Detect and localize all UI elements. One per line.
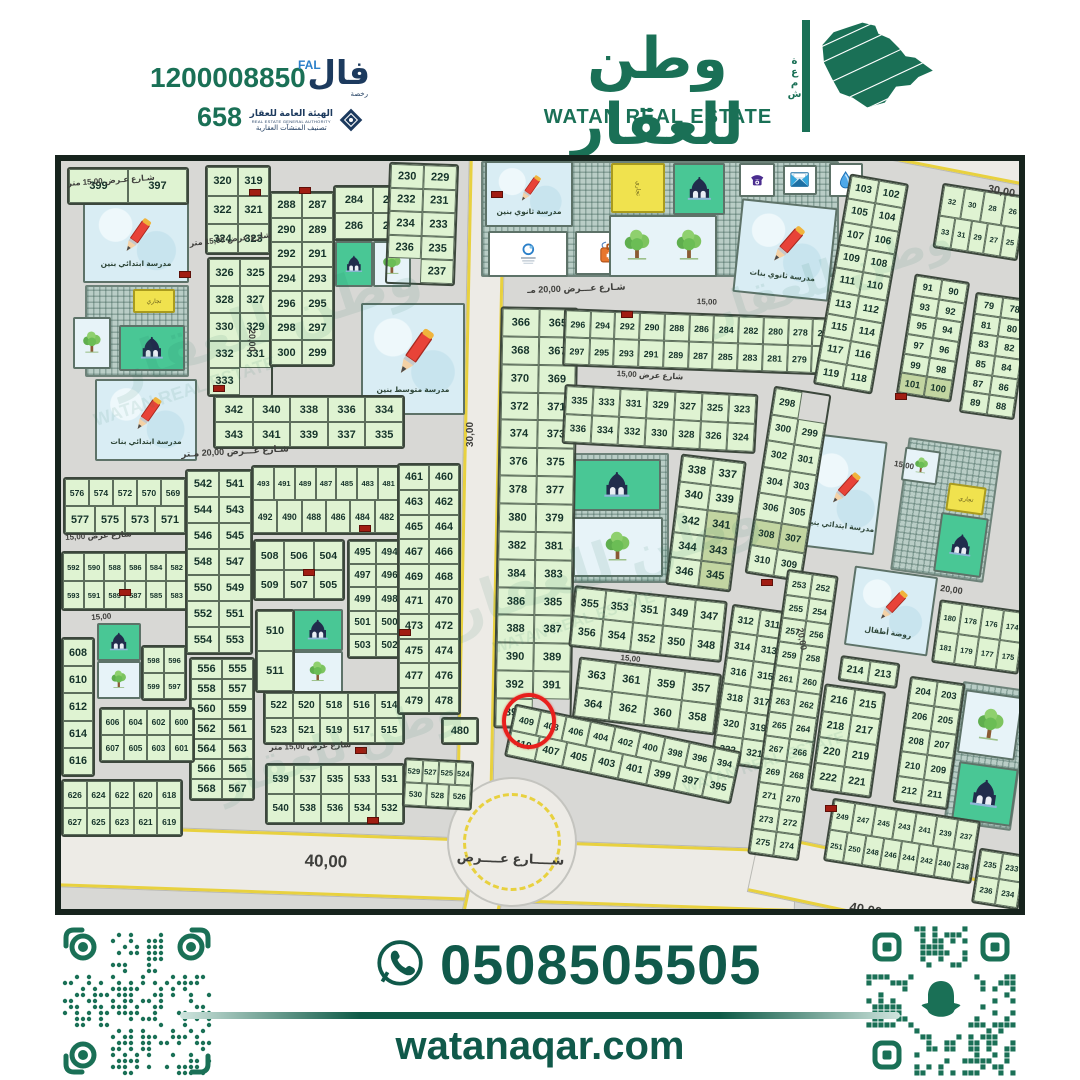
authority-name-ar: الهيئة العامة للعقار (250, 108, 333, 119)
plot-296: 296 (565, 310, 591, 338)
plot-273: 273 (753, 805, 780, 832)
plot-467: 467 (399, 539, 429, 564)
plot-328: 328 (209, 286, 240, 313)
plot-325: 325 (240, 259, 271, 286)
plot-328: 328 (672, 420, 701, 449)
plot-335: 335 (365, 422, 403, 447)
plot-558: 558 (191, 679, 222, 699)
plot-206: 206 (905, 703, 934, 731)
plot-604: 604 (124, 709, 147, 735)
plot-569: 569 (161, 479, 185, 506)
plot-empty (387, 258, 421, 283)
plot-284: 284 (335, 187, 373, 213)
plot-335: 335 (565, 386, 594, 415)
plot-220: 220 (816, 737, 848, 767)
plot-330: 330 (209, 313, 240, 340)
snapchat-qr-code[interactable] (866, 926, 1016, 1076)
plot-211: 211 (920, 780, 949, 808)
plot-586: 586 (125, 553, 146, 581)
plot-515: 515 (375, 718, 403, 743)
fal-latin: FAL (298, 58, 321, 72)
plot-503: 503 (349, 634, 376, 657)
plot-574: 574 (89, 479, 113, 506)
plot-524: 524 (454, 762, 472, 786)
plot-block-b296: 2962942922902882862842822802782762972952… (562, 308, 840, 376)
website-qr-code[interactable] (62, 926, 212, 1076)
plot-block-b556: 5565555585575605595625615645635665655685… (189, 657, 255, 801)
commercial-nw: تجاري (133, 289, 175, 313)
plot-497: 497 (349, 564, 376, 587)
plot-567: 567 (222, 779, 253, 799)
plot-560: 560 (191, 699, 222, 719)
plot-355: 355 (573, 587, 606, 619)
tree-se (957, 689, 1019, 760)
plot-block-b493: 493491489487485483481492490488486484482 (251, 465, 401, 535)
plot-321: 321 (238, 196, 269, 225)
plot-289: 289 (302, 218, 333, 243)
plot-470: 470 (429, 589, 459, 614)
plot-542: 542 (187, 471, 219, 497)
plot-559: 559 (222, 699, 253, 719)
street-label-7: شـارع عـــرض 20,00 مـ (527, 282, 626, 296)
plot-352: 352 (630, 622, 663, 654)
plot-566: 566 (191, 759, 222, 779)
sec-sign (488, 231, 568, 277)
plot-546: 546 (187, 523, 219, 549)
plot-342: 342 (215, 397, 253, 422)
plot-297: 297 (564, 337, 590, 365)
plot-221: 221 (841, 767, 873, 797)
plot-212: 212 (895, 776, 924, 804)
plot-237: 237 (954, 820, 979, 853)
plot-556: 556 (191, 659, 222, 679)
plot-block-b461: 4614604634624654644674664694684714704734… (397, 463, 461, 715)
plot-218: 218 (819, 711, 851, 741)
plot-468: 468 (429, 564, 459, 589)
mosque-c (573, 459, 661, 511)
plot-329: 329 (646, 390, 675, 419)
plot-460: 460 (429, 465, 459, 490)
street-label-16: 15,00 (620, 653, 641, 664)
plot-block-b510: 510511 (255, 609, 295, 693)
plot-block-b216: 216215218217220219222221 (810, 683, 886, 799)
plot-305: 305 (782, 497, 813, 527)
plot-310: 310 (747, 545, 778, 575)
plot-583: 583 (166, 581, 187, 609)
plot-339: 339 (290, 422, 328, 447)
plot-386: 386 (497, 587, 534, 616)
tree-nw (73, 317, 111, 369)
plot-331: 331 (619, 389, 648, 418)
plot-516: 516 (348, 693, 376, 718)
plot-618: 618 (157, 781, 181, 808)
kindergarten: روضة أطفال (844, 566, 938, 657)
plot-385: 385 (534, 588, 571, 617)
entrance-marker-14 (303, 569, 315, 576)
plot-511: 511 (257, 651, 293, 691)
mosque-ne (933, 512, 989, 578)
plot-464: 464 (429, 515, 459, 540)
plot-293: 293 (614, 339, 640, 367)
plot-533: 533 (349, 765, 376, 794)
plot-215: 215 (852, 690, 884, 720)
plot-462: 462 (429, 490, 459, 515)
plot-540: 540 (267, 794, 294, 823)
brand-divider-bar (802, 20, 810, 132)
plot-553: 553 (219, 627, 251, 653)
plot-279: 279 (787, 345, 813, 373)
plot-359: 359 (647, 667, 685, 700)
plot-543: 543 (219, 497, 251, 523)
plot-383: 383 (535, 560, 572, 589)
plot-627: 627 (63, 808, 87, 835)
plot-314: 314 (727, 632, 757, 662)
roundabout (463, 793, 561, 891)
street-label-12: 40,00 (304, 851, 347, 872)
street-label-5: 15,00 (91, 612, 112, 622)
plot-297: 297 (302, 316, 333, 341)
plot-209: 209 (924, 755, 953, 783)
plot-268: 268 (783, 762, 810, 789)
plot-356: 356 (570, 616, 603, 648)
plot-298: 298 (271, 316, 302, 341)
plot-298: 298 (772, 388, 803, 418)
plot-255: 255 (782, 594, 809, 621)
street-label-3: شـارع عـــرض 20,00 مـتر (181, 443, 289, 460)
plot-343: 343 (215, 422, 253, 447)
plot-361: 361 (612, 663, 650, 696)
plot-254: 254 (806, 598, 833, 625)
entrance-marker-4 (119, 589, 131, 596)
plot-281: 281 (762, 344, 788, 372)
plot-208: 208 (902, 727, 931, 755)
plot-596: 596 (164, 647, 185, 673)
plot-390: 390 (496, 643, 533, 672)
plot-377: 377 (536, 476, 573, 505)
mosque-top (673, 163, 725, 215)
saudi-arabia-map-logo (816, 10, 936, 128)
plot-358: 358 (678, 700, 716, 733)
plot-219: 219 (844, 741, 876, 771)
plot-283: 283 (737, 343, 763, 371)
plot-217: 217 (848, 715, 880, 745)
license-number: 658 (150, 102, 242, 133)
plot-block-b342: 342340338336334343341339337335 (213, 395, 405, 449)
mosque-tree-c (293, 609, 343, 693)
plot-286: 286 (335, 213, 373, 239)
plot-213: 213 (867, 661, 898, 687)
plot-576: 576 (65, 479, 89, 506)
plot-291: 291 (302, 242, 333, 267)
plot-374: 374 (500, 420, 537, 449)
plot-520: 520 (293, 693, 321, 718)
plot-476: 476 (429, 663, 459, 688)
brand-name-arabic: وطن للعقار (520, 26, 795, 158)
plot-307: 307 (778, 523, 809, 553)
street-label-14: 20,00 (940, 583, 964, 596)
plot-551: 551 (219, 601, 251, 627)
plot-230: 230 (390, 164, 424, 189)
plot-block-b508: 508506504509507505 (253, 539, 345, 601)
tree-c (573, 517, 663, 577)
plot-614: 614 (63, 721, 93, 748)
plot-530: 530 (404, 782, 427, 806)
plot-300: 300 (768, 414, 799, 444)
plot-545: 545 (219, 523, 251, 549)
plot-584: 584 (146, 553, 167, 581)
plot-288: 288 (664, 314, 690, 342)
footer-divider (180, 1012, 900, 1019)
entrance-marker-12 (367, 817, 379, 824)
plot-485: 485 (336, 467, 357, 500)
plot-337: 337 (711, 459, 745, 488)
website-url[interactable]: watanaqar.com (340, 1024, 740, 1069)
entrance-marker-10 (621, 311, 633, 318)
plot-333: 333 (592, 387, 621, 416)
plot-299: 299 (302, 340, 333, 365)
plot-25: 25 (999, 226, 1019, 259)
plot-282: 282 (738, 316, 764, 344)
plot-252: 252 (809, 574, 836, 601)
plot-empty (798, 392, 829, 422)
icon-mail (783, 165, 817, 195)
plot-214: 214 (840, 657, 871, 683)
plot-263: 263 (769, 688, 796, 715)
plot-379: 379 (536, 504, 573, 533)
plot-606: 606 (101, 709, 124, 735)
plot-593: 593 (63, 581, 84, 609)
plot-285: 285 (712, 342, 738, 370)
plot-block-b542: 5425415445435465455485475505495525515545… (185, 469, 253, 655)
plot-269: 269 (759, 759, 786, 786)
plot-550: 550 (187, 575, 219, 601)
plot-537: 537 (294, 765, 321, 794)
plot-294: 294 (590, 311, 616, 339)
plot-616: 616 (63, 748, 93, 775)
plot-234: 234 (389, 211, 423, 236)
mosque-nw (119, 325, 185, 371)
brand-vertical-word: شمعة (786, 28, 800, 128)
plot-348: 348 (690, 629, 723, 661)
plot-463: 463 (399, 490, 429, 515)
plot-478: 478 (429, 688, 459, 713)
plot-block-b230: 230229232231234233236235237 (385, 162, 459, 286)
whatsapp-icon (372, 938, 426, 992)
plot-231: 231 (422, 189, 456, 214)
entrance-marker-6 (761, 579, 773, 586)
plot-324: 324 (726, 423, 755, 452)
commercial-ne: تجاري (945, 482, 987, 515)
plot-518: 518 (320, 693, 348, 718)
plot-322: 322 (207, 196, 238, 225)
plot-370: 370 (501, 364, 538, 393)
plot-295: 295 (589, 338, 615, 366)
plot-522: 522 (265, 693, 293, 718)
plot-236: 236 (388, 235, 422, 260)
plot-291: 291 (638, 340, 664, 368)
plot-block-b522: 522520518516514523521519517515 (263, 691, 405, 745)
plot-290: 290 (639, 313, 665, 341)
plot-293: 293 (302, 267, 333, 292)
plot-480: 480 (443, 719, 477, 743)
plot-504: 504 (314, 541, 343, 570)
plot-577: 577 (65, 506, 95, 533)
plot-233: 233 (422, 212, 456, 237)
plot-229: 229 (423, 165, 457, 190)
plot-323: 323 (728, 395, 757, 424)
commercial-top: تجاري (611, 163, 665, 213)
plot-334: 334 (365, 397, 403, 422)
plot-312: 312 (730, 606, 760, 636)
plot-292: 292 (271, 242, 302, 267)
plot-210: 210 (898, 752, 927, 780)
plot-519: 519 (320, 718, 348, 743)
plot-334: 334 (591, 415, 620, 444)
whatsapp-contact[interactable]: 0508505505 (372, 932, 792, 997)
plot-326: 326 (699, 421, 728, 450)
plot-287: 287 (688, 342, 714, 370)
unified-phone-number[interactable]: 1200008850 (150, 62, 298, 94)
plot-346: 346 (667, 557, 701, 586)
plot-block-b366: 3663653683673703693723713743733763753783… (493, 306, 578, 729)
plot-289: 289 (663, 341, 689, 369)
plot-271: 271 (756, 782, 783, 809)
plot-342: 342 (674, 507, 708, 536)
plot-block-b235: 235233236234 (971, 848, 1019, 909)
plot-565: 565 (222, 759, 253, 779)
plot-622: 622 (110, 781, 134, 808)
plot-253: 253 (786, 571, 813, 598)
plot-262: 262 (793, 692, 820, 719)
plot-499: 499 (349, 587, 376, 610)
plot-620: 620 (134, 781, 158, 808)
plot-332: 332 (209, 341, 240, 368)
plot-517: 517 (348, 718, 376, 743)
plot-296: 296 (271, 291, 302, 316)
plot-267: 267 (763, 735, 790, 762)
plot-block-b214: 214213 (837, 655, 900, 689)
plot-472: 472 (429, 614, 459, 639)
plot-119: 119 (815, 360, 847, 388)
plot-232: 232 (389, 187, 423, 212)
plot-340: 340 (677, 481, 711, 510)
fal-license-logo: فال FAL رخصة (300, 56, 370, 102)
plot-203: 203 (934, 682, 963, 710)
plot-523: 523 (265, 718, 293, 743)
plot-360: 360 (643, 696, 681, 729)
plot-619: 619 (157, 808, 181, 835)
plot-350: 350 (660, 626, 693, 658)
plot-387: 387 (534, 615, 571, 644)
plot-block-b576: 576574572570569577575573571 (63, 477, 187, 535)
authority-classification: تصنيف المنشآت العقارية (250, 124, 333, 132)
plot-339: 339 (708, 485, 742, 514)
plot-572: 572 (113, 479, 137, 506)
plot-538: 538 (294, 794, 321, 823)
plot-495: 495 (349, 541, 376, 564)
plot-216: 216 (823, 685, 855, 715)
plot-274: 274 (773, 832, 800, 859)
plot-486: 486 (326, 500, 350, 533)
mosque-tree-w (97, 623, 141, 699)
plot-295: 295 (302, 291, 333, 316)
plot-598: 598 (143, 647, 164, 673)
entrance-marker-7 (895, 393, 907, 400)
plot-372: 372 (501, 392, 538, 421)
entrance-marker-11 (825, 805, 837, 812)
plot-block-b539: 539537535533531540538536534532 (265, 763, 405, 825)
plot-570: 570 (137, 479, 161, 506)
plot-343: 343 (701, 536, 735, 565)
plot-299: 299 (794, 418, 825, 448)
plot-287: 287 (302, 193, 333, 218)
plot-483: 483 (357, 467, 378, 500)
plot-306: 306 (755, 493, 786, 523)
entrance-marker-9 (249, 189, 261, 196)
plot-351: 351 (633, 594, 666, 626)
plot-empty (240, 368, 271, 395)
plot-341: 341 (704, 510, 738, 539)
plot-261: 261 (773, 665, 800, 692)
plot-381: 381 (535, 532, 572, 561)
plot-270: 270 (780, 785, 807, 812)
whatsapp-number[interactable]: 0508505505 (440, 932, 761, 997)
plot-362: 362 (609, 692, 647, 725)
plot-349: 349 (663, 597, 696, 629)
plot-block-b598: 598596599597 (141, 645, 187, 701)
plot-475: 475 (399, 639, 429, 664)
street-label-6: شارع عرض 15,00 متر (269, 740, 351, 752)
plot-603: 603 (147, 735, 170, 761)
plot-316: 316 (723, 657, 753, 687)
plot-237: 237 (420, 259, 454, 284)
plot-575: 575 (95, 506, 125, 533)
plot-582: 582 (166, 553, 187, 581)
plot-block-b524: 529527525524530528526 (402, 757, 475, 811)
plot-block-b590: 592590588586584582593591589587585583 (61, 551, 189, 611)
plot-290: 290 (271, 218, 302, 243)
entrance-marker-5 (399, 629, 411, 636)
plot-302: 302 (763, 440, 794, 470)
plot-205: 205 (931, 706, 960, 734)
plot-547: 547 (219, 549, 251, 575)
plot-347: 347 (693, 600, 726, 632)
plot-592: 592 (63, 553, 84, 581)
plot-489: 489 (295, 467, 316, 500)
plot-552: 552 (187, 601, 219, 627)
plot-625: 625 (87, 808, 111, 835)
plot-block-b180: 180178176174181179177175 (931, 599, 1019, 675)
plot-378: 378 (499, 476, 536, 505)
plot-395: 395 (701, 772, 734, 802)
plot-488: 488 (302, 500, 326, 533)
entrance-marker-13 (491, 191, 503, 198)
brand-name-english: WATAN REAL ESTATE (528, 106, 788, 129)
plot-389: 389 (533, 643, 570, 672)
plot-529: 529 (405, 759, 423, 783)
plot-605: 605 (124, 735, 147, 761)
plot-626: 626 (63, 781, 87, 808)
plot-260: 260 (796, 668, 823, 695)
entrance-marker-8 (355, 747, 367, 754)
plot-487: 487 (316, 467, 337, 500)
plot-327: 327 (240, 286, 271, 313)
plot-block-b606: 606604602600607605603601 (99, 707, 195, 763)
plot-481: 481 (378, 467, 399, 500)
plot-568: 568 (191, 779, 222, 799)
plot-318: 318 (720, 683, 750, 713)
plot-492: 492 (253, 500, 277, 533)
